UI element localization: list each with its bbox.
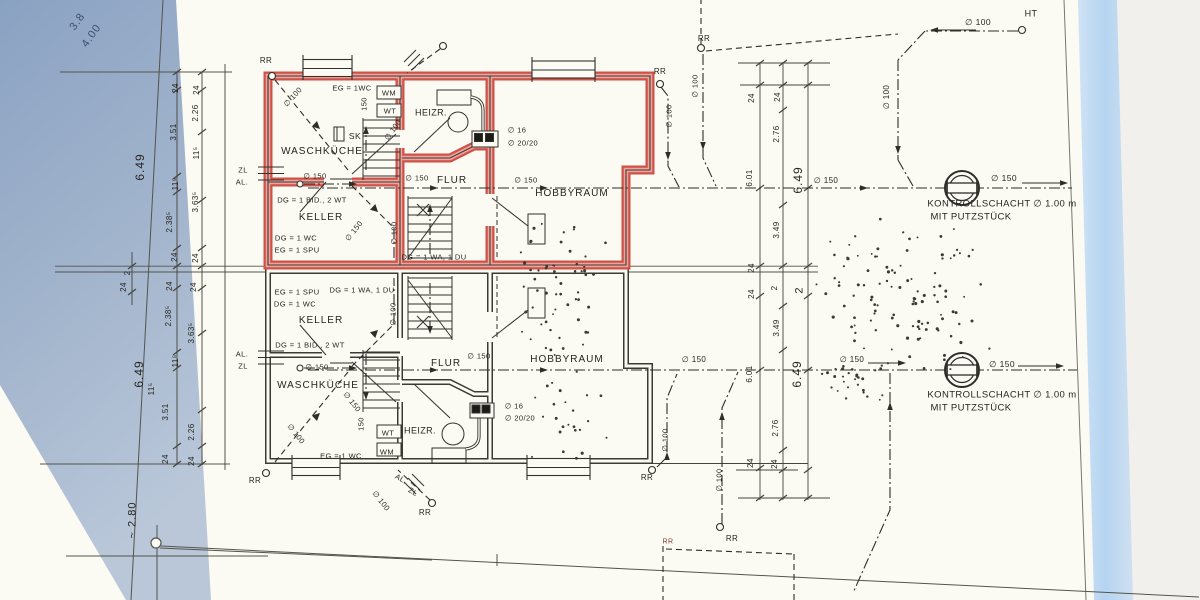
dryer-upper bbox=[377, 104, 401, 117]
kontrollschacht-upper bbox=[945, 171, 979, 205]
washing-machine-lower bbox=[377, 443, 401, 456]
rr-node bbox=[657, 81, 664, 88]
ht-node bbox=[1019, 27, 1026, 34]
rr-node bbox=[717, 524, 724, 531]
floor-plan-drawing bbox=[0, 0, 1200, 600]
rr-node bbox=[429, 500, 436, 507]
rr-node bbox=[269, 73, 276, 80]
washing-machine-upper bbox=[377, 86, 401, 99]
dryer-lower bbox=[377, 425, 401, 438]
rr-node bbox=[649, 467, 656, 474]
rr-node bbox=[698, 45, 705, 52]
rr-node bbox=[440, 43, 447, 50]
rr-node bbox=[263, 470, 270, 477]
floor-plan-photo: 3.84.0024242.263.5111⁵6.4911⁵3.63⁵2.38⁵2… bbox=[0, 0, 1200, 600]
